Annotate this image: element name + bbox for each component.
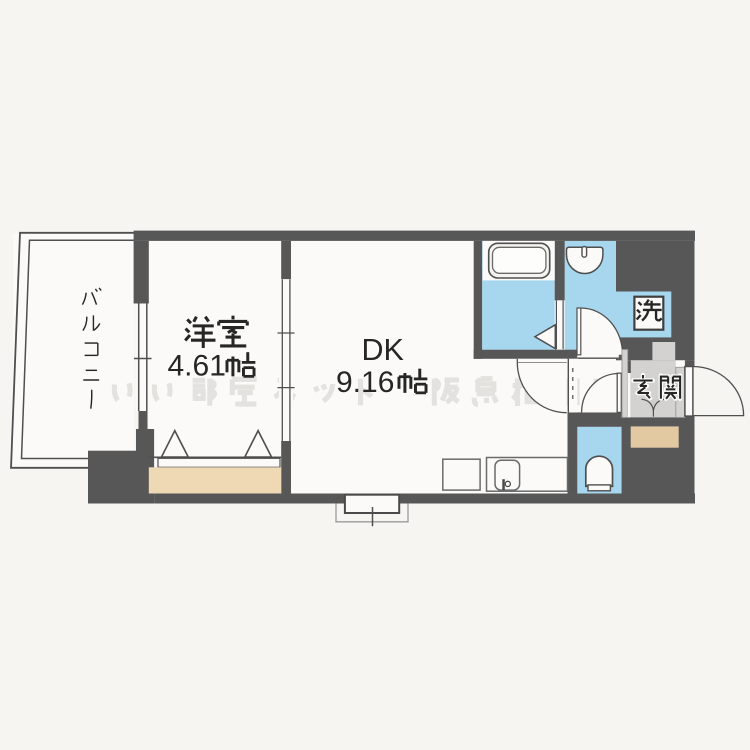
svg-text:9.16: 9.16	[336, 366, 394, 399]
svg-text:4.61: 4.61	[168, 350, 226, 383]
svg-text:DK: DK	[362, 333, 404, 367]
